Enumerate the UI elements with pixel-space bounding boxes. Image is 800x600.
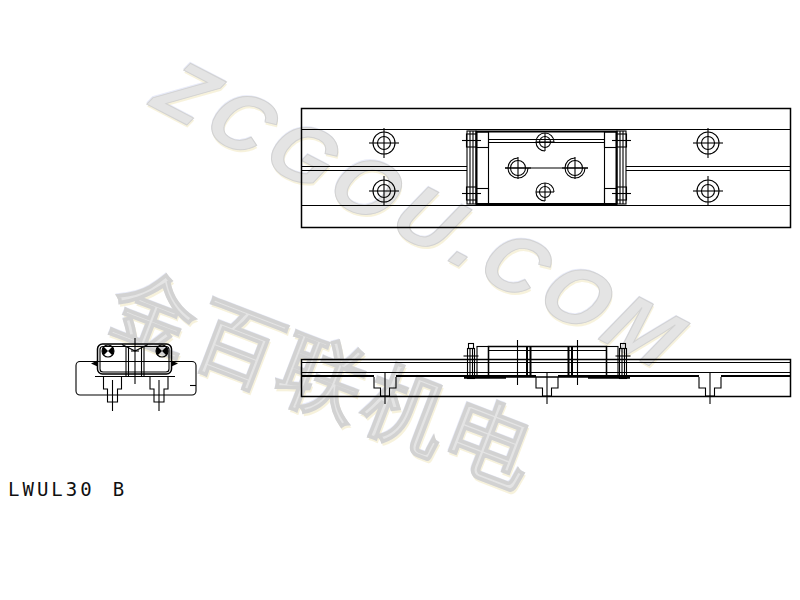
plan-view xyxy=(302,109,791,228)
part-model: LWUL30 xyxy=(8,478,95,500)
carriage-thread-holes xyxy=(536,133,554,201)
cbore-end xyxy=(104,377,122,411)
hole-mid xyxy=(562,157,588,179)
hole-cross xyxy=(693,128,723,158)
end-view xyxy=(76,338,196,411)
rail-outline-side xyxy=(302,360,791,397)
hole-cross xyxy=(693,176,723,206)
flange-bolt-holes xyxy=(104,377,169,411)
cbore-side xyxy=(699,373,721,404)
part-size-code: B xyxy=(113,478,127,500)
flange-outline-end xyxy=(76,362,196,396)
hole-thread xyxy=(536,183,554,201)
part-label: LWUL30 B xyxy=(8,478,127,500)
carriage-plan xyxy=(462,131,631,204)
cad-drawing xyxy=(0,0,800,600)
hole-mid xyxy=(505,157,531,179)
hole-cross xyxy=(369,128,399,158)
cbore-side xyxy=(374,373,396,404)
cbore-end xyxy=(150,377,168,411)
hole-cross xyxy=(369,176,399,206)
hole-thread xyxy=(536,133,554,151)
drawing-sheet: ZCGOU.COM 金百联机电 xyxy=(0,0,800,600)
side-view xyxy=(302,340,791,404)
